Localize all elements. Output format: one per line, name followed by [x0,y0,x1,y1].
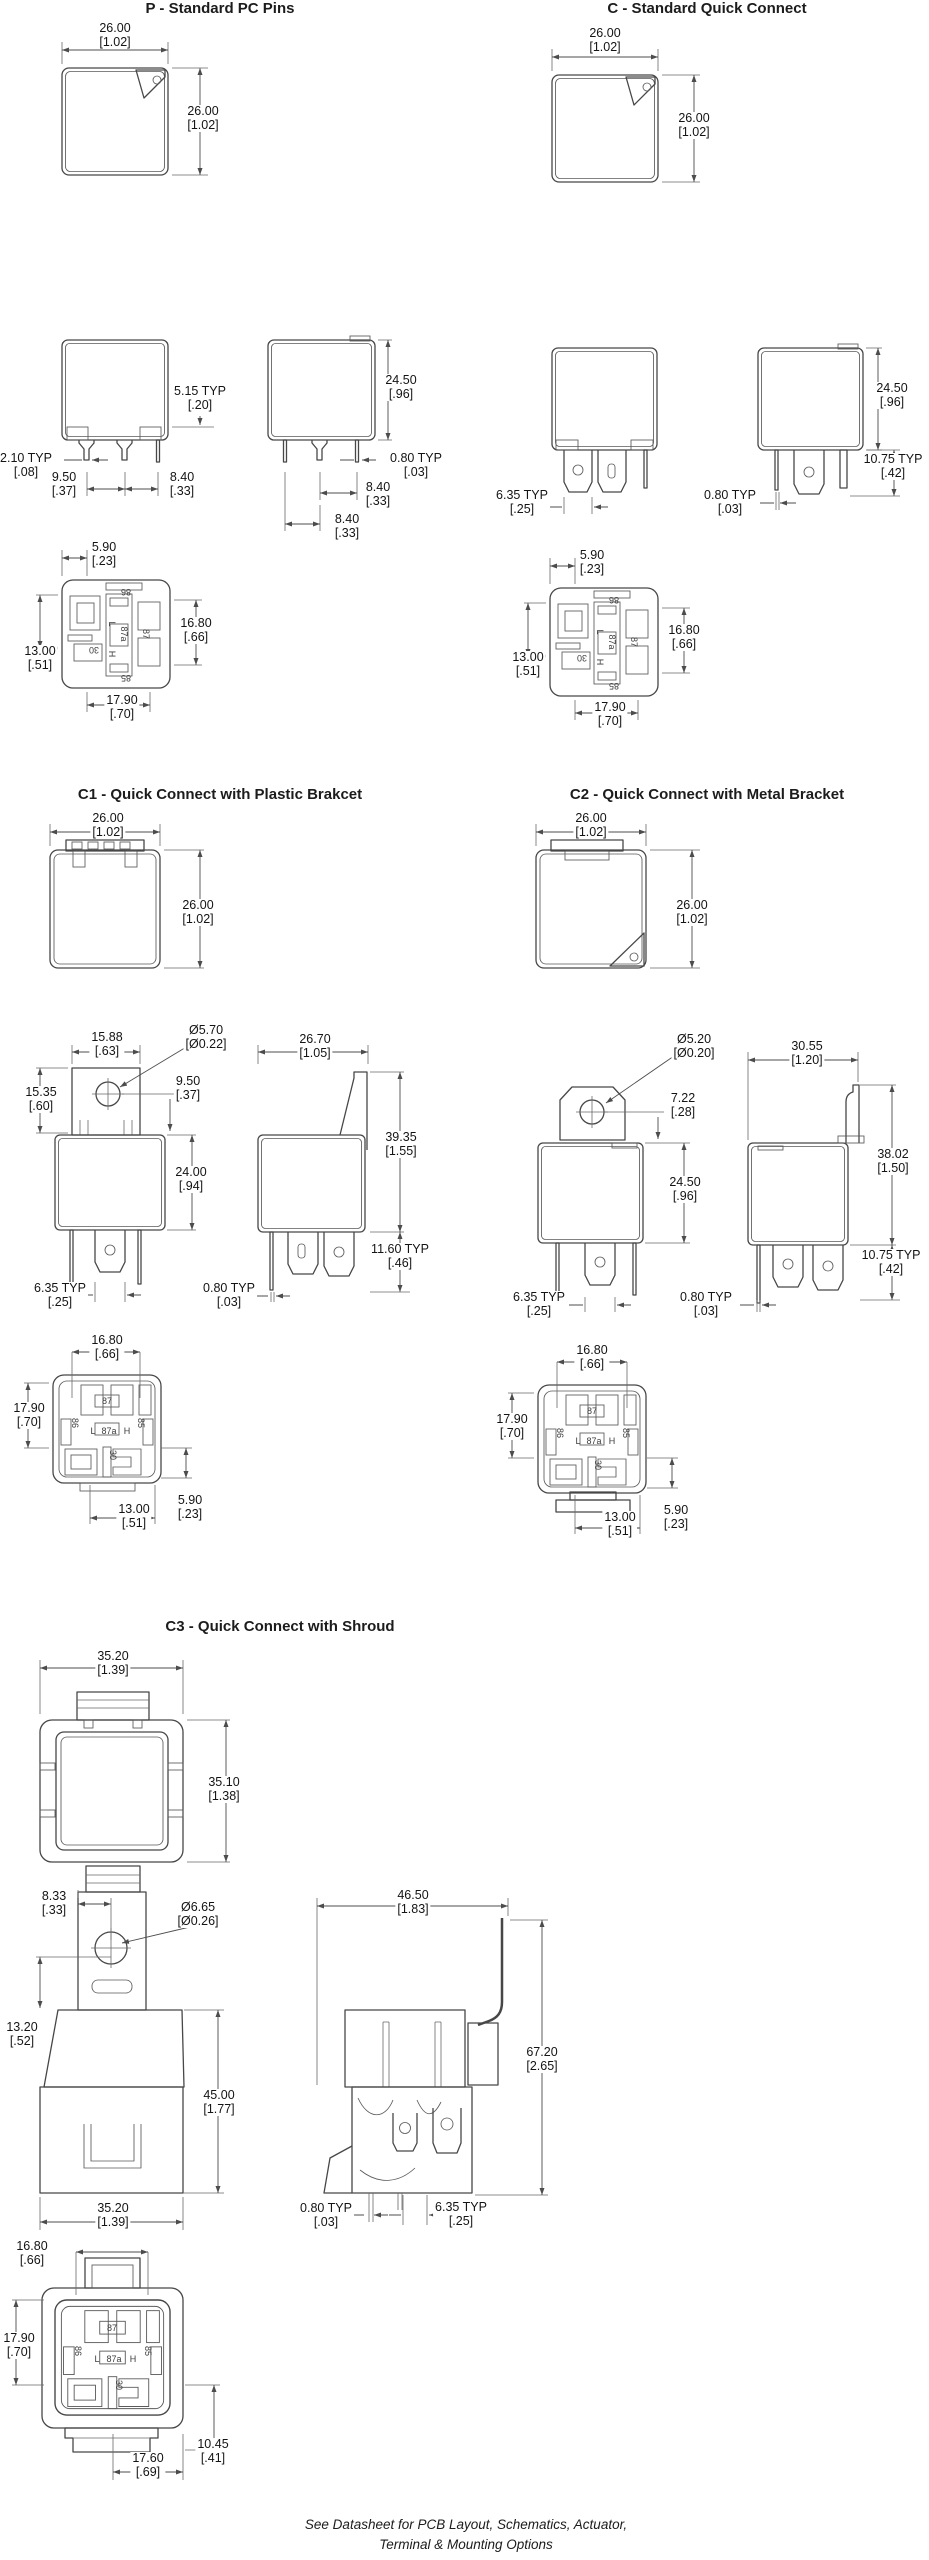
pin-label-l: L [94,2354,99,2364]
dim-c3-b1680: 16.80[.66] [14,2240,49,2267]
dim-c1-950: 9.50[.37] [174,1075,202,1102]
dim-c3-080: 0.80 TYP[.03] [298,2202,354,2229]
pin-label-86: 86 [70,1418,80,1428]
pin-label-h: H [130,2354,137,2364]
dim-p-840a: 8.40[.33] [364,481,392,508]
c-front-view-2 [758,344,900,510]
dim-c2-top-width: 26.00[1.02] [573,812,608,839]
dim-c-top-height: 26.00[1.02] [676,112,711,139]
pin-label-87: 87 [102,1396,112,1406]
dim-c1-b1790: 17.90[.70] [11,1402,46,1429]
section-title-c3: C3 - Quick Connect with Shroud [165,1618,394,1635]
dim-c3-4650: 46.50[1.83] [395,1889,430,1916]
dim-c2-1075: 10.75 TYP[.42] [860,1249,923,1276]
dim-p-950: 9.50[.37] [50,471,78,498]
dim-p-2450: 24.50[.96] [383,374,418,401]
dim-c-080: 0.80 TYP[.03] [702,489,758,516]
c1-side-view-1 [36,1045,196,1302]
pin-label-h: H [595,659,605,666]
pin-label-85: 85 [121,673,131,683]
footer-note-line1: See Datasheet for PCB Layout, Schematics… [305,2515,627,2535]
dim-c3-1320: 13.20[.52] [4,2021,39,2048]
dim-c3-b1045: 10.45[.41] [195,2438,230,2465]
drawing-linework [0,0,929,2560]
dim-c2-b1790: 17.90[.70] [494,1413,529,1440]
pin-label-87a: 87a [119,626,129,641]
pin-label-86: 86 [609,595,619,605]
dim-c1-top-width: 26.00[1.02] [90,812,125,839]
pin-label-87a: 87a [106,2354,121,2364]
dim-c2-d520: Ø5.20[Ø0.20] [672,1033,717,1060]
dim-c2-3802: 38.02[1.50] [875,1148,910,1175]
c1-bottom-view [24,1352,192,1524]
dim-c3-top-height: 35.10[1.38] [206,1776,241,1803]
dim-c1-1160: 11.60 TYP[.46] [369,1243,431,1270]
pin-label-h: H [609,1436,616,1446]
pin-label-87a: 87a [101,1426,116,1436]
pin-label-87: 87 [587,1406,597,1416]
footer-note: See Datasheet for PCB Layout, Schematics… [305,2515,627,2555]
pin-label-30: 30 [108,1450,118,1460]
section-title-p: P - Standard PC Pins [146,0,295,17]
dim-c-1075: 10.75 TYP[.42] [862,453,925,480]
dim-c1-d570: Ø5.70[Ø0.22] [184,1024,229,1051]
pin-label-85: 85 [609,681,619,691]
dim-p-840-f1: 8.40[.33] [168,471,196,498]
dim-c1-635: 6.35 TYP[.25] [32,1282,88,1309]
section-title-c: C - Standard Quick Connect [607,0,806,17]
dim-p-top-width: 26.00[1.02] [97,22,132,49]
pin-label-85: 85 [621,1428,631,1438]
pin-label-85: 85 [136,1418,146,1428]
dim-c3-b1790: 17.90[.70] [1,2332,36,2359]
pin-label-h: H [107,651,117,658]
c3-bottom-view [12,2252,220,2480]
pin-label-87a: 87a [607,634,617,649]
dim-p-210: 2.10 TYP[.08] [0,452,54,479]
dim-c3-b1760: 17.60[.69] [130,2452,165,2479]
dim-p-top-height: 26.00[1.02] [185,105,220,132]
dim-c1-1588: 15.88[.63] [89,1031,124,1058]
pin-label-l: L [107,621,117,626]
dim-c2-080: 0.80 TYP[.03] [678,1291,734,1318]
dim-p-590: 5.90[.23] [90,541,118,568]
dim-c2-b1680: 16.80[.66] [574,1344,609,1371]
dim-c3-6720: 67.20[2.65] [524,2046,559,2073]
dim-p-1680: 16.80[.66] [178,617,213,644]
pin-label-85: 85 [143,2346,153,2356]
c3-top-view [40,1660,230,1862]
dim-c3-top-width: 35.20[1.39] [95,1650,130,1677]
dim-c-1300: 13.00[.51] [510,651,545,678]
pin-label-l: L [595,629,605,634]
c3-side-view-2 [317,1898,548,2225]
dim-c2-2450: 24.50[.96] [667,1176,702,1203]
pin-label-87: 87 [107,2323,117,2333]
pin-label-l: L [575,1436,580,1446]
dim-c2-722: 7.22[.28] [669,1092,697,1119]
c-front-view-1 [548,348,657,514]
section-title-c2: C2 - Quick Connect with Metal Bracket [570,786,844,803]
c2-bottom-view [508,1362,678,1534]
dim-c1-1535: 15.35[.60] [23,1086,58,1113]
footer-note-line2: Terminal & Mounting Options [305,2535,627,2555]
dim-p-840b: 8.40[.33] [333,513,361,540]
pin-label-l: L [90,1426,95,1436]
dim-c-1790: 17.90[.70] [592,701,627,728]
dim-p-080: 0.80 TYP[.03] [388,452,444,479]
dim-c-590: 5.90[.23] [578,549,606,576]
c2-top-view [536,824,700,968]
pin-label-h: H [124,1426,131,1436]
dim-c3-d665: Ø6.65[Ø0.26] [176,1901,221,1928]
dim-c1-b1680: 16.80[.66] [89,1334,124,1361]
pin-label-86: 86 [73,2346,83,2356]
dim-c-2450: 24.50[.96] [874,382,909,409]
dim-c1-2670: 26.70[1.05] [297,1033,332,1060]
dim-c2-top-height: 26.00[1.02] [674,899,709,926]
pin-label-30: 30 [89,645,99,655]
dim-p-515: 5.15 TYP[.20] [172,385,228,412]
pin-label-87: 87 [141,629,151,639]
c1-top-view [50,824,204,968]
dim-c3-635: 6.35 TYP[.25] [433,2201,489,2228]
pin-label-87a: 87a [586,1436,601,1446]
pin-label-86: 86 [121,587,131,597]
dim-c2-635: 6.35 TYP[.25] [511,1291,567,1318]
dim-c-1680: 16.80[.66] [666,624,701,651]
dim-c1-b590: 5.90[.23] [176,1494,204,1521]
section-title-c1: C1 - Quick Connect with Plastic Brakcet [78,786,362,803]
dim-c3-4500: 45.00[1.77] [201,2089,236,2116]
pin-label-87: 87 [629,637,639,647]
dim-c-top-width: 26.00[1.02] [587,27,622,54]
dim-c2-b590: 5.90[.23] [662,1504,690,1531]
pin-label-30: 30 [114,2380,124,2390]
dim-p-1790: 17.90[.70] [104,694,139,721]
dim-p-1300: 13.00[.51] [22,645,57,672]
dim-c3-833: 8.33[.33] [40,1890,68,1917]
pin-label-30: 30 [593,1460,603,1470]
dim-c-635: 6.35 TYP[.25] [494,489,550,516]
dim-c3-3520: 35.20[1.39] [95,2202,130,2229]
dim-c1-3935: 39.35[1.55] [383,1131,418,1158]
dim-c1-b1300: 13.00[.51] [116,1503,151,1530]
relay-dimension-drawing-page: { "titles": { "p": "P - Standard PC Pins… [0,0,929,2560]
dim-c1-top-height: 26.00[1.02] [180,899,215,926]
dim-c1-2400: 24.00[.94] [173,1166,208,1193]
dim-c1-080: 0.80 TYP[.03] [201,1282,257,1309]
pin-label-30: 30 [577,653,587,663]
dim-c2-3055: 30.55[1.20] [789,1040,824,1067]
dim-c2-b1300: 13.00[.51] [602,1511,637,1538]
pin-label-86: 86 [555,1428,565,1438]
